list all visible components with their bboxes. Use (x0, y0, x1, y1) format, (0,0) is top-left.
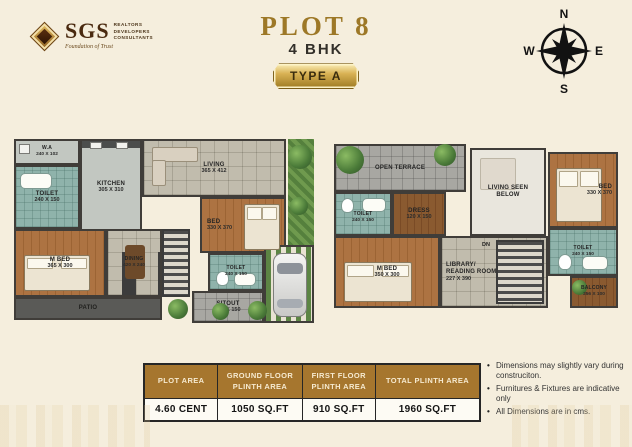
note-item: Furnitures & Fixtures are indicative onl… (487, 384, 629, 405)
room-label: OPEN TERRACE (375, 165, 425, 172)
room-label: BED (207, 219, 220, 226)
logo-text: SGS REALTORS DEVELOPERS CONSULTANTS Foun… (65, 20, 153, 50)
logo-brand: SGS (65, 20, 110, 42)
room-label: DRESS (408, 208, 430, 215)
table-header: FIRST FLOOR PLINTH AREA (303, 365, 375, 399)
room-dims: 240 X 150 (225, 272, 247, 277)
room-toilet-left: TOILET 240 X 150 (334, 192, 392, 236)
table-value: 910 SQ.FT (303, 399, 375, 420)
logo-tagline: Foundation of Trust (65, 44, 153, 50)
room-master-bed: M BED 365 X 300 (14, 229, 106, 297)
room-dims: 420 X 240 (123, 263, 145, 268)
table-column: GROUND FLOOR PLINTH AREA 1050 SQ.FT (217, 365, 301, 420)
skyline-watermark (512, 405, 632, 447)
logo-line: REALTORS (114, 22, 154, 29)
room-dims: 330 X 370 (587, 190, 612, 196)
table-value: 1960 SQ.FT (376, 399, 479, 420)
type-badge: TYPE A (273, 63, 359, 89)
room-master-bed: M BED 350 X 300 (334, 236, 440, 308)
skyline-watermark (0, 405, 150, 447)
car-icon (273, 253, 307, 317)
room-patio: PATIO (14, 297, 162, 320)
room-dining: DINING 420 X 240 (106, 229, 162, 297)
plot-subtitle: 4 BHK (228, 41, 404, 58)
room-bed: BED 330 X 370 (200, 197, 286, 253)
compass-north-label: N (560, 7, 569, 21)
room-dims: 330 X 370 (207, 225, 232, 231)
table-header: GROUND FLOOR PLINTH AREA (218, 365, 301, 399)
title-block: PLOT 8 4 BHK TYPE A (228, 12, 404, 89)
table-value: 4.60 CENT (145, 399, 217, 420)
table-column: PLOT AREA 4.60 CENT (145, 365, 217, 420)
room-living: LIVING 365 X 412 (142, 139, 286, 197)
area-table: PLOT AREA 4.60 CENT GROUND FLOOR PLINTH … (143, 363, 481, 422)
plant-icon (336, 146, 364, 174)
room-label: LIBRARY/ READING ROOM (446, 262, 500, 276)
room-label: M BED (50, 257, 70, 264)
table-header: TOTAL PLINTH AREA (376, 365, 479, 399)
staircase-icon (496, 240, 544, 304)
bathtub-icon (20, 173, 52, 189)
stove-icon (90, 142, 102, 149)
table-column: TOTAL PLINTH AREA 1960 SQ.FT (375, 365, 479, 420)
table-column: FIRST FLOOR PLINTH AREA 910 SQ.FT (302, 365, 375, 420)
logo-line: CONSULTANTS (114, 35, 154, 42)
appliance-icon (19, 144, 30, 154)
room-dims: 240 X 102 (36, 152, 58, 157)
type-badge-label: TYPE A (290, 69, 342, 83)
toilet-icon (341, 198, 354, 213)
room-dims: 365 X 412 (201, 168, 226, 174)
compass-south-label: S (560, 82, 568, 96)
room-dress: DRESS 120 X 150 (392, 192, 446, 236)
room-label: KITCHEN (97, 181, 125, 188)
plant-icon (434, 144, 456, 166)
room-label: LIVING (203, 162, 224, 169)
room-kitchen: KITCHEN 305 X 310 (80, 139, 142, 235)
table-header: PLOT AREA (145, 365, 217, 399)
staircase-icon (162, 229, 190, 297)
flyer-page: SGS REALTORS DEVELOPERS CONSULTANTS Foun… (0, 0, 632, 447)
logo: SGS REALTORS DEVELOPERS CONSULTANTS Foun… (34, 20, 153, 50)
room-toilet-bottom: TOILET 240 X 150 (208, 253, 264, 291)
plot-title: PLOT 8 (228, 12, 404, 40)
room-dims: 240 X 150 (352, 218, 374, 223)
room-work-area: W.A 240 X 102 (14, 139, 80, 165)
room-label: TOILET (36, 191, 58, 198)
logo-diamond-icon (30, 22, 60, 52)
plant-icon (168, 299, 188, 319)
room-dims: 365 X 300 (47, 263, 72, 269)
bed-icon (244, 204, 280, 250)
first-floor-plan: OPEN TERRACE TOILET 240 X 150 DRESS 120 … (332, 140, 622, 320)
sofa-icon (152, 160, 166, 186)
room-dims: 120 X 150 (406, 214, 431, 220)
room-living-seen-below: LIVING SEEN BELOW (470, 148, 546, 236)
note-item: Dimensions may slightly vary during cons… (487, 361, 629, 382)
plant-icon (248, 301, 267, 320)
room-toilet-top: TOILET 240 X 150 (14, 165, 80, 229)
room-dims: 256 X 100 (583, 292, 605, 297)
room-label: LIVING SEEN BELOW (482, 185, 534, 199)
room-label: BED (599, 184, 612, 191)
room-dims: 240 X 150 (572, 252, 594, 257)
logo-lines: REALTORS DEVELOPERS CONSULTANTS (114, 22, 154, 42)
plant-icon (290, 197, 308, 215)
room-dims: 350 X 300 (374, 272, 399, 278)
room-dims: 240 X 150 (34, 197, 59, 203)
room-dims: 227 X 390 (446, 276, 471, 282)
bathtub-icon (362, 198, 386, 212)
bathtub-icon (582, 256, 608, 270)
ground-floor-plan: W.A 240 X 102 TOILET 240 X 150 KITCHEN 3… (12, 133, 315, 320)
logo-line: DEVELOPERS (114, 29, 154, 36)
plant-icon (212, 303, 229, 320)
stairs-down-label: DN (482, 242, 490, 248)
sink-icon (116, 142, 128, 149)
room-dims: 305 X 310 (98, 187, 123, 193)
room-label: PATIO (79, 305, 97, 312)
room-toilet-right: TOILET 240 X 150 (548, 228, 618, 276)
room-bed: BED 330 X 370 (548, 152, 618, 228)
toilet-icon (558, 254, 572, 270)
room-label: M BED (377, 266, 397, 273)
plant-icon (288, 145, 312, 169)
compass-west-label: W (523, 44, 535, 58)
compass-east-label: E (595, 44, 603, 58)
table-value: 1050 SQ.FT (218, 399, 301, 420)
compass-rose-icon: N S W E (518, 4, 610, 101)
